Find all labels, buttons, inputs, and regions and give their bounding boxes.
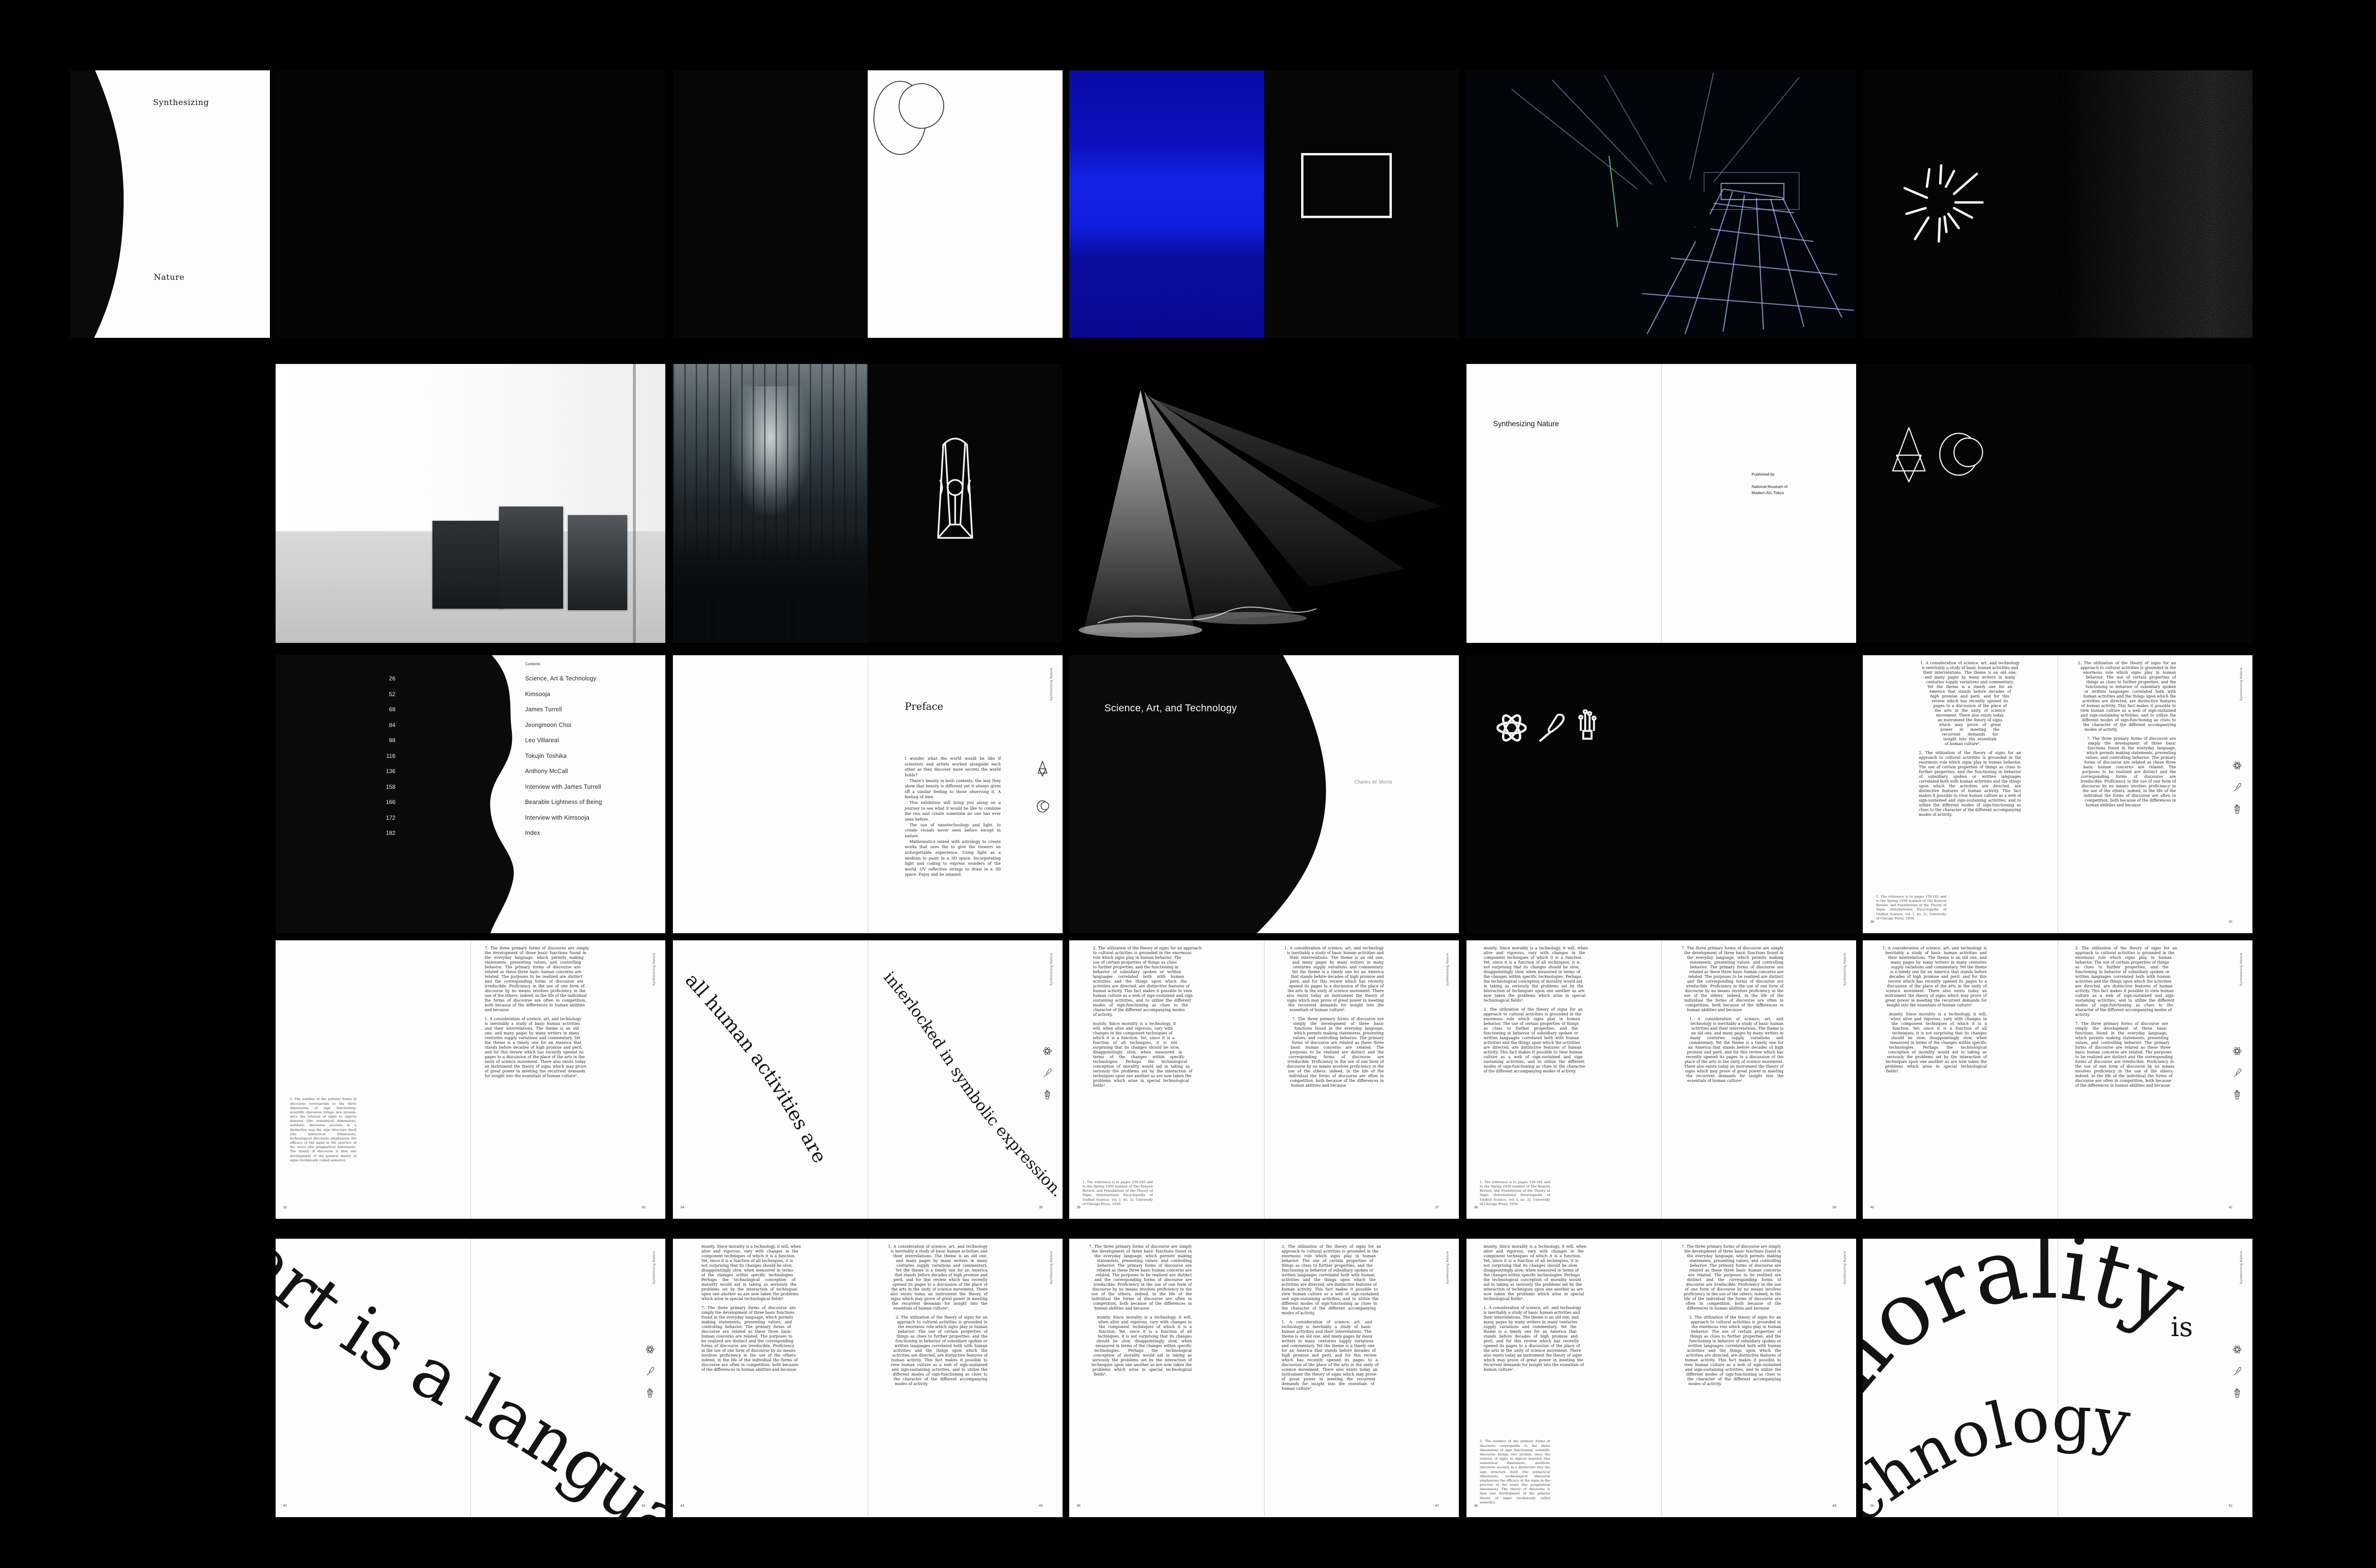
page-gutter bbox=[868, 655, 868, 933]
body-paragraph: The use of nanotechnology and light, to … bbox=[905, 822, 1001, 839]
body-paragraph: Mathematics mixed with astrology to crea… bbox=[905, 839, 1001, 878]
body-paragraph: 7. The three primary forms of discourse … bbox=[1282, 1017, 1384, 1088]
science-atom-icon bbox=[1495, 711, 1528, 745]
essay-spread-46-47[interactable]: Synthesizing Nature 7. The three primary… bbox=[1069, 1239, 1459, 1517]
technology-circuit-icon bbox=[645, 1388, 655, 1399]
eclipse-spread[interactable] bbox=[673, 70, 1063, 338]
body-paragraph: 1. A consideration of science, art, and … bbox=[1679, 1017, 1783, 1083]
art-brush-icon bbox=[645, 1367, 655, 1376]
body-paragraph: 1. A consideration of science, art, and … bbox=[1880, 946, 1987, 1008]
page-number: 43 bbox=[642, 1504, 645, 1508]
quote-spread-42-43[interactable]: Synthesizing Nature art is a language 42… bbox=[276, 1239, 665, 1517]
page-number: 50 bbox=[1870, 1504, 1874, 1508]
preface-margin-glyphs bbox=[1037, 761, 1049, 813]
curved-quote-graphic: all human activities are interlocked in … bbox=[673, 940, 1063, 1219]
body-paragraph: 7. The three primary forms of discourse … bbox=[2075, 1022, 2180, 1088]
running-head: Synthesizing Nature bbox=[1446, 1251, 1449, 1284]
quote-text: art is a language bbox=[276, 1239, 665, 1517]
cover-title-top: Synthesizing bbox=[126, 98, 236, 107]
svg-text:technology: technology bbox=[1863, 1382, 2135, 1517]
page-gutter bbox=[1264, 940, 1265, 1219]
triangles-icon bbox=[1889, 426, 1929, 483]
body-paragraph: 2. The utilization of the theory of sign… bbox=[1919, 751, 2021, 817]
essay-spread-38-39[interactable]: Synthesizing Nature munity. Since morali… bbox=[1466, 940, 1856, 1219]
quote-spread-50-51[interactable]: Synthesizing Nature morality is technolo… bbox=[1863, 1239, 2252, 1517]
published-by-label: Published by bbox=[1752, 471, 1788, 478]
page-gutter bbox=[868, 1239, 868, 1517]
science-atom-icon bbox=[2232, 1046, 2242, 1056]
contents-entry-page: 172 bbox=[371, 814, 395, 830]
body-paragraph: 7. The three primary forms of discourse … bbox=[1679, 1244, 1781, 1311]
preface-body: I wonder what the world would be like if… bbox=[905, 756, 1001, 878]
light-tunnel-graphic bbox=[1466, 70, 1856, 338]
art-brush-icon bbox=[1043, 1068, 1052, 1078]
body-paragraph: 7. The three primary forms of discourse … bbox=[701, 1306, 804, 1372]
margin-icon-stack bbox=[1043, 1046, 1052, 1100]
body-paragraph: 2. The utilization of the theory of sign… bbox=[1282, 1244, 1384, 1316]
svg-text:art is a language: art is a language bbox=[276, 1239, 665, 1517]
page-number: 37 bbox=[1435, 1206, 1439, 1209]
publisher-name-line2: Modern Art, Tokyo bbox=[1752, 490, 1788, 497]
body-paragraph: 7. The three primary forms of discourse … bbox=[485, 946, 592, 1013]
glasshouse-obelisk-spread[interactable] bbox=[673, 364, 1063, 643]
body-paragraph: 7. The three primary forms of discourse … bbox=[1086, 1244, 1192, 1311]
page-number: 32 bbox=[283, 1206, 287, 1209]
cover-curve-shape bbox=[70, 70, 270, 338]
body-paragraph: 1. A consideration of science, art, and … bbox=[1282, 946, 1384, 1013]
chapter-opener-spread[interactable]: Science, Art, and Technology Charles W. … bbox=[1069, 655, 1459, 933]
rectangle-outline bbox=[1301, 153, 1392, 218]
contents-titles: Science, Art & TechnologyKimsoojaJames T… bbox=[525, 675, 663, 845]
page-number: 45 bbox=[1039, 1504, 1043, 1508]
text-column: 2. The utilization of the theory of sign… bbox=[1282, 1244, 1384, 1444]
body-paragraph: 7. The three primary forms of discourse … bbox=[1679, 946, 1783, 1013]
cover-title-bottom: Nature bbox=[115, 273, 224, 282]
page-number: 47 bbox=[1435, 1504, 1439, 1508]
page-number: 49 bbox=[1832, 1504, 1836, 1508]
technology-circuit-icon bbox=[2232, 804, 2242, 815]
running-head: Synthesizing Nature bbox=[1843, 953, 1847, 986]
running-head: Synthesizing Nature bbox=[2240, 953, 2243, 986]
publisher-block: Published by National Museum of Modern A… bbox=[1752, 471, 1788, 497]
curved-quote-graphic: art is a language bbox=[276, 1239, 665, 1517]
page-number: 38 bbox=[1474, 1206, 1478, 1209]
quote-spread-34-35[interactable]: Synthesizing Nature all human activities… bbox=[673, 940, 1063, 1219]
preface-spread[interactable]: Synthesizing Nature Preface I wonder wha… bbox=[673, 655, 1063, 933]
circle-moon-icon bbox=[1939, 431, 1984, 477]
text-column: 7. The three primary forms of discourse … bbox=[485, 946, 592, 1146]
glass-box bbox=[432, 521, 504, 609]
body-paragraph: munity. Since morality is a technology, … bbox=[1484, 946, 1590, 1003]
contents-entry-title[interactable]: Interview with Kimsooja bbox=[525, 814, 663, 830]
page-gutter bbox=[2058, 655, 2058, 933]
essay-spread-32-33[interactable]: Synthesizing Nature 2. The number of the… bbox=[276, 940, 665, 1219]
page-gutter bbox=[1661, 364, 1662, 643]
body-paragraph: There's beauty in both contexts, the way… bbox=[905, 778, 1001, 801]
contents-entry-title[interactable]: Anthony McCall bbox=[525, 768, 663, 784]
text-column: 7. The three primary forms of discourse … bbox=[1086, 1244, 1192, 1444]
essay-spread-30-31[interactable]: Synthesizing Nature 1. A consideration o… bbox=[1863, 655, 2252, 933]
technology-circuit-icon bbox=[2232, 1090, 2242, 1100]
chapter-title: Science, Art, and Technology bbox=[1104, 703, 1237, 714]
contents-entry-title[interactable]: Leo Villareal bbox=[525, 737, 663, 753]
contents-entry-page: 26 bbox=[371, 675, 395, 691]
text-column: 7. The three primary forms of discourse … bbox=[1679, 946, 1783, 1146]
contents-entry-page: 158 bbox=[371, 784, 395, 799]
page-number: 42 bbox=[283, 1504, 287, 1508]
body-paragraph: 7. The three primary forms of discourse … bbox=[2075, 736, 2176, 808]
running-head: Synthesizing Nature bbox=[652, 953, 656, 986]
chapter-curve-shape bbox=[1069, 655, 1459, 933]
chapter-icons-spread[interactable] bbox=[1466, 655, 1856, 933]
margin-icon-stack bbox=[645, 1345, 655, 1399]
contents-entry-page: 116 bbox=[371, 753, 395, 768]
margin-icon-stack bbox=[2232, 1345, 2242, 1399]
body-paragraph: munity. Since morality is a technology, … bbox=[1880, 1012, 1987, 1074]
circle-moon-icon bbox=[1037, 800, 1049, 813]
body-paragraph: munity. Since morality is a technology, … bbox=[1086, 1315, 1192, 1377]
running-head: Synthesizing Nature bbox=[1843, 1251, 1847, 1284]
text-column: 2. The utilization of the theory of sign… bbox=[1093, 946, 1212, 1150]
contents-entry-title[interactable]: James Turrell bbox=[525, 706, 663, 722]
body-paragraph: 2. The utilization of the theory of sign… bbox=[1484, 1007, 1590, 1074]
light-cones-graphic bbox=[1069, 364, 1459, 643]
gallery-wall bbox=[276, 364, 665, 531]
text-column: 1. A consideration of science, art, and … bbox=[885, 1244, 987, 1444]
page-gutter bbox=[470, 940, 471, 1219]
body-paragraph: 1. A consideration of science, art, and … bbox=[485, 1017, 592, 1079]
contents-spread[interactable]: Contents 2652688498116136158166172182 Sc… bbox=[276, 655, 665, 933]
science-atom-icon bbox=[1043, 1046, 1052, 1056]
essay-spread-48-49[interactable]: Synthesizing Nature munity. Since morali… bbox=[1466, 1239, 1856, 1517]
obelisk-icon bbox=[934, 430, 977, 542]
title-page-spread[interactable]: Synthesizing Nature Published by Nationa… bbox=[1466, 364, 1856, 643]
margin-icon-stack bbox=[2232, 1046, 2242, 1100]
page-number: 34 bbox=[680, 1206, 684, 1209]
contents-entry-title[interactable]: Jeongmoon Choi bbox=[525, 722, 663, 737]
science-atom-icon bbox=[2232, 1345, 2242, 1354]
page-number: 40 bbox=[1870, 1206, 1874, 1209]
contents-entry-page: 182 bbox=[371, 830, 395, 845]
essay-spread-44-45[interactable]: Synthesizing Nature munity. Since morali… bbox=[673, 1239, 1063, 1517]
text-column: 2. The utilization of the theory of sign… bbox=[2075, 661, 2176, 860]
starburst-noise-spread[interactable] bbox=[1863, 70, 2252, 338]
blue-gradient-page bbox=[1069, 70, 1264, 338]
body-paragraph: 2. The utilization of the theory of sign… bbox=[2075, 661, 2176, 732]
essay-spread-40-41[interactable]: Synthesizing Nature 1. A consideration o… bbox=[1863, 940, 2252, 1219]
contents-entry-page: 84 bbox=[371, 722, 395, 737]
svg-text:interlocked in symbolic expres: interlocked in symbolic expression. bbox=[880, 968, 1063, 1200]
title-page-title: Synthesizing Nature bbox=[1493, 420, 1559, 429]
glass-box bbox=[499, 507, 563, 609]
art-brush-icon bbox=[2232, 1367, 2242, 1376]
text-column: 1. A consideration of science, art, and … bbox=[1880, 946, 1987, 1146]
contents-header: Contents bbox=[525, 662, 540, 666]
footnote: 1. The reference is to pages 139-182 and… bbox=[1876, 895, 1946, 921]
text-column: munity. Since morality is a technology, … bbox=[1484, 946, 1590, 1146]
preface-heading: Preface bbox=[905, 701, 943, 712]
glyph-spread[interactable] bbox=[1863, 364, 2252, 643]
page-gutter bbox=[1264, 1239, 1265, 1517]
glasshouse-photo bbox=[673, 364, 868, 643]
footnote: 2. The number of the primary forms of di… bbox=[290, 1097, 356, 1163]
technology-circuit-icon bbox=[2232, 1388, 2242, 1399]
page-number: 41 bbox=[2229, 1206, 2232, 1209]
book-cover[interactable]: Synthesizing Nature bbox=[70, 70, 270, 338]
quote-text-left: all human activities are bbox=[681, 969, 831, 1166]
contents-entry-title[interactable]: Kimsooja bbox=[525, 691, 663, 707]
contents-entry-page: 136 bbox=[371, 768, 395, 784]
art-brush-icon bbox=[2232, 783, 2242, 792]
triangles-icon bbox=[1037, 761, 1048, 776]
body-paragraph: 2. The utilization of the theory of sign… bbox=[2075, 946, 2180, 1017]
page-number: 31 bbox=[2229, 920, 2232, 924]
glass-divider bbox=[633, 364, 636, 643]
contents-entry-page: 68 bbox=[371, 706, 395, 722]
inside-cover-spread[interactable] bbox=[276, 70, 665, 338]
contents-page-numbers: 2652688498116136158166172182 bbox=[371, 675, 395, 845]
contents-entry-title[interactable]: Science, Art & Technology bbox=[525, 675, 663, 691]
footnote: 1. The reference is to pages 139-182 and… bbox=[1083, 1180, 1153, 1206]
science-atom-icon bbox=[2232, 761, 2242, 770]
contents-entry-title[interactable]: Tokujin Toshika bbox=[525, 753, 663, 768]
contents-entry-title[interactable]: Bearable Lightness of Being bbox=[525, 799, 663, 814]
running-head: Synthesizing Nature bbox=[2240, 668, 2243, 701]
running-head: Synthesizing Nature bbox=[1050, 1251, 1053, 1284]
glass-box bbox=[568, 515, 627, 610]
running-head: Synthesizing Nature bbox=[1446, 953, 1449, 986]
page-number: 39 bbox=[1832, 1206, 1836, 1209]
quote-text-right: interlocked in symbolic expression. bbox=[880, 968, 1063, 1200]
contents-entry-title[interactable]: Interview with James Turrell bbox=[525, 784, 663, 799]
blue-rectangle-spread[interactable] bbox=[1069, 70, 1459, 338]
body-paragraph: munity. Since morality is a technology, … bbox=[1484, 1244, 1589, 1301]
body-paragraph: 1. A consideration of science, art, and … bbox=[885, 1244, 987, 1311]
margin-icon-stack bbox=[2232, 761, 2242, 815]
page-gutter bbox=[2058, 940, 2058, 1219]
page-gutter bbox=[1661, 1239, 1662, 1517]
body-paragraph: 2. The utilization of the theory of sign… bbox=[885, 1315, 987, 1386]
page-number: 33 bbox=[642, 1206, 645, 1209]
running-head: Synthesizing Nature bbox=[1050, 668, 1053, 701]
page-number: 51 bbox=[2229, 1504, 2232, 1508]
text-column: 1. A consideration of science, art, and … bbox=[1282, 946, 1384, 1146]
page-gutter bbox=[1661, 940, 1662, 1219]
chapter-author: Charles W. Morris bbox=[1354, 780, 1392, 785]
page-number: 46 bbox=[1077, 1504, 1081, 1508]
quote-text-technology: technology bbox=[1863, 1382, 2135, 1517]
page-number: 48 bbox=[1474, 1504, 1478, 1508]
page-number: 35 bbox=[1039, 1206, 1043, 1209]
light-cones-photo[interactable] bbox=[1069, 364, 1459, 643]
science-atom-icon bbox=[645, 1345, 655, 1354]
technology-circuit-icon bbox=[1572, 709, 1603, 744]
body-paragraph: 1. A consideration of science, art, and … bbox=[1282, 1320, 1384, 1391]
footnote: 2. The number of the primary forms of di… bbox=[1480, 1439, 1550, 1505]
publisher-name-line1: National Museum of bbox=[1752, 484, 1788, 490]
footnote: 1. The reference is to pages 139-182 and… bbox=[1480, 1180, 1550, 1206]
essay-spread-36-37[interactable]: Synthesizing Nature 2. The utilization o… bbox=[1069, 940, 1459, 1219]
svg-text:all human activities are: all human activities are bbox=[681, 969, 831, 1166]
noise-photo bbox=[2058, 70, 2252, 338]
body-paragraph: I wonder what the world would be like if… bbox=[905, 756, 1001, 778]
quote-text-is: is bbox=[2171, 1312, 2193, 1343]
text-column: 2. The utilization of the theory of sign… bbox=[2075, 946, 2180, 1146]
technology-circuit-icon bbox=[1043, 1090, 1052, 1100]
contents-entry-page: 98 bbox=[371, 737, 395, 753]
body-paragraph: 1. A consideration of science, art, and … bbox=[1484, 1306, 1589, 1372]
page-number: 44 bbox=[680, 1504, 684, 1508]
art-brush-icon bbox=[2232, 1068, 2242, 1078]
text-column: 7. The three primary forms of discourse … bbox=[1679, 1244, 1781, 1444]
page-number: 30 bbox=[1870, 920, 1874, 924]
black-page bbox=[673, 70, 868, 338]
text-column: munity. Since morality is a technology, … bbox=[1484, 1244, 1589, 1444]
starburst-icon bbox=[1901, 161, 1986, 246]
page-number: 36 bbox=[1077, 1206, 1081, 1209]
light-installation-photo[interactable] bbox=[1466, 70, 1856, 338]
body-paragraph: 2. The utilization of the theory of sign… bbox=[1679, 1315, 1781, 1386]
contents-entry-title[interactable]: Index bbox=[525, 830, 663, 845]
text-column: 1. A consideration of science, art, and … bbox=[1919, 661, 2021, 822]
eclipse-circles-icon bbox=[872, 80, 948, 161]
body-paragraph: munity. Since morality is a technology, … bbox=[701, 1244, 804, 1301]
art-brush-icon bbox=[1535, 712, 1567, 744]
body-paragraph: This exhibition will bring you along on … bbox=[905, 800, 1001, 822]
contents-entry-page: 166 bbox=[371, 799, 395, 814]
gallery-installation-photo[interactable] bbox=[276, 364, 665, 643]
curved-quote-graphic: morality is technology bbox=[1863, 1239, 2252, 1517]
contents-entry-page: 52 bbox=[371, 691, 395, 707]
text-column: munity. Since morality is a technology, … bbox=[701, 1244, 804, 1444]
